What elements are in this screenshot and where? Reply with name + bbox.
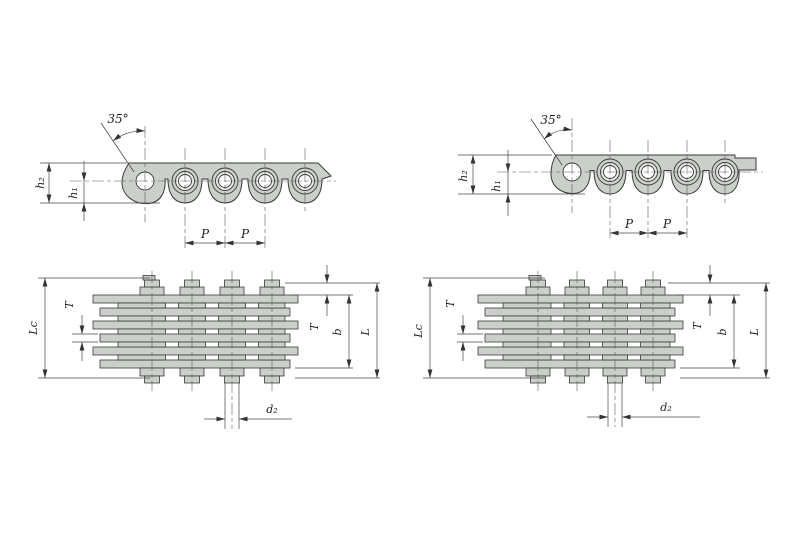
d2-dimension: d₂	[204, 383, 292, 429]
d2-label: d₂	[660, 401, 671, 414]
right-side-view: 35° h₂ h₁ P P	[457, 113, 763, 238]
pitch-label: P	[624, 217, 634, 231]
t-right-dimension: T	[285, 265, 380, 331]
pitch-label: P	[662, 217, 672, 231]
pitch-label: P	[200, 227, 210, 241]
angle-label: 35°	[540, 113, 561, 127]
left-side-view: 35° h₂ h₁ P P	[34, 112, 336, 248]
d2-label: d₂	[266, 403, 277, 416]
l-label: L	[748, 328, 761, 336]
b-dimension: b	[295, 295, 353, 368]
pitch-dimension: P P	[610, 217, 687, 235]
angle-construction-line	[101, 123, 134, 172]
b-label: b	[331, 328, 344, 335]
h1-label: h₁	[490, 180, 503, 192]
right-plan-view: Lc T T b	[412, 265, 770, 427]
pitch-label: P	[240, 227, 250, 241]
plate-stack	[93, 295, 298, 368]
t-label: T	[444, 299, 457, 308]
t-label: T	[691, 321, 704, 330]
angle-label: 35°	[107, 112, 128, 126]
b-label: b	[716, 328, 729, 335]
t-label: T	[308, 322, 321, 331]
lc-label: Lc	[412, 324, 425, 338]
angle-dimension: 35°	[540, 113, 572, 141]
lc-label: Lc	[27, 321, 40, 335]
t-label: T	[63, 300, 76, 309]
leaf-chain-technical-drawing: 35° h₂ h₁ P P	[0, 0, 800, 533]
plate-stack	[478, 295, 683, 368]
h1-label: h₁	[67, 187, 80, 199]
drawing-canvas: 35° h₂ h₁ P P	[0, 0, 800, 533]
angle-dimension: 35°	[107, 112, 145, 143]
h2-label: h₂	[457, 170, 470, 182]
l-label: L	[359, 328, 372, 336]
left-plan-view: Lc T T b	[27, 265, 380, 429]
h2-label: h₂	[34, 177, 47, 189]
t-left-dimension: T	[444, 299, 483, 361]
d2-dimension: d₂	[587, 383, 700, 427]
